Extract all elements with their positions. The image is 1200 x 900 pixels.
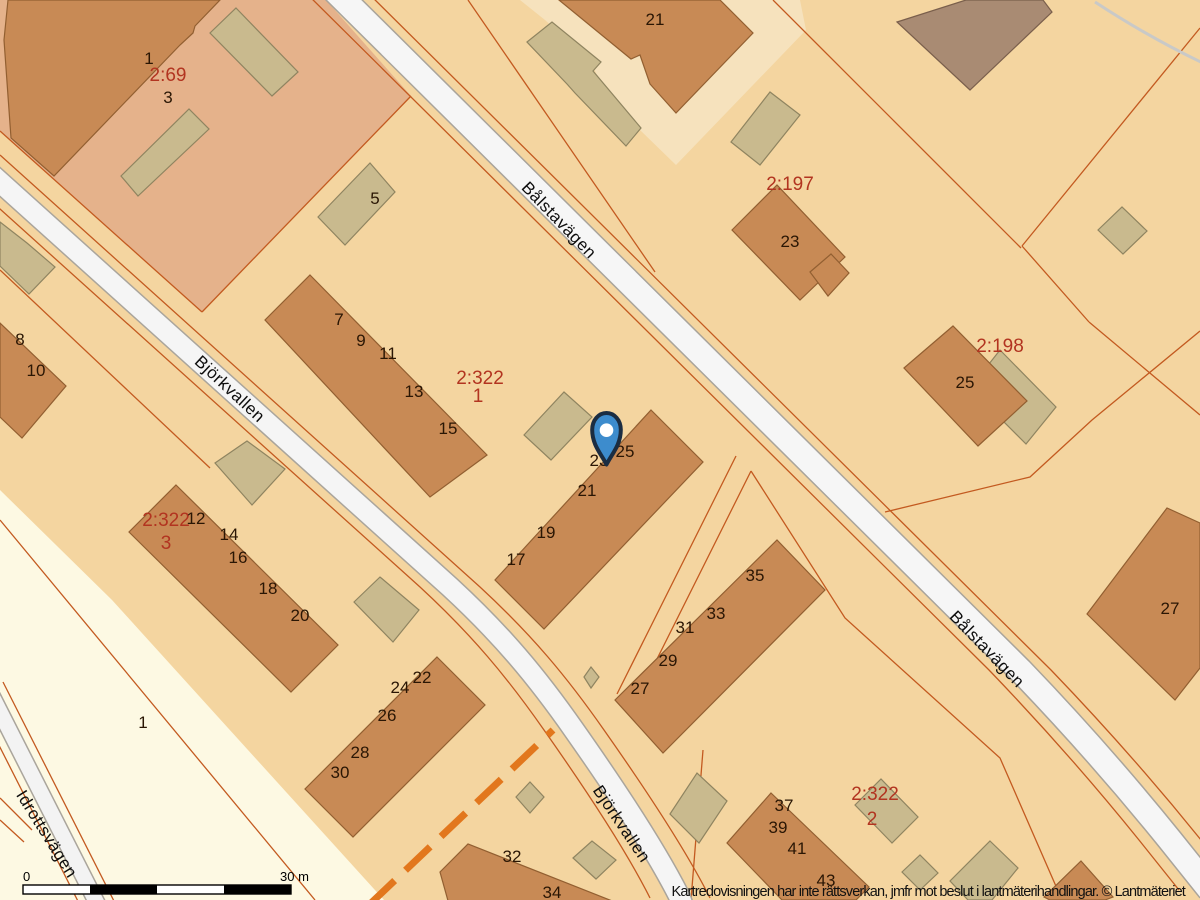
svg-text:29: 29 (659, 651, 678, 670)
svg-text:12: 12 (187, 509, 206, 528)
svg-text:22: 22 (413, 668, 432, 687)
svg-text:13: 13 (405, 382, 424, 401)
svg-text:18: 18 (259, 579, 278, 598)
svg-text:2: 2 (867, 809, 878, 830)
svg-text:31: 31 (676, 618, 695, 637)
svg-text:25: 25 (956, 373, 975, 392)
svg-text:34: 34 (543, 883, 562, 900)
svg-text:9: 9 (356, 331, 365, 350)
svg-text:3: 3 (161, 533, 172, 554)
svg-text:23: 23 (781, 232, 800, 251)
svg-text:1: 1 (473, 386, 484, 407)
svg-text:21: 21 (646, 10, 665, 29)
svg-text:14: 14 (220, 525, 239, 544)
svg-text:Kartredovisningen har inte rät: Kartredovisningen har inte rättsverkan, … (672, 884, 1186, 900)
svg-text:3: 3 (163, 88, 172, 107)
svg-text:7: 7 (334, 310, 343, 329)
svg-text:30: 30 (331, 763, 350, 782)
svg-text:26: 26 (378, 706, 397, 725)
svg-text:2:69: 2:69 (150, 65, 187, 86)
svg-text:21: 21 (578, 481, 597, 500)
svg-text:17: 17 (507, 550, 526, 569)
svg-text:16: 16 (229, 548, 248, 567)
svg-text:37: 37 (775, 796, 794, 815)
svg-text:39: 39 (769, 818, 788, 837)
svg-text:2:198: 2:198 (976, 336, 1024, 357)
svg-text:2:322: 2:322 (851, 784, 899, 805)
svg-text:20: 20 (291, 606, 310, 625)
svg-text:19: 19 (537, 523, 556, 542)
svg-text:1: 1 (144, 49, 153, 68)
svg-text:33: 33 (707, 604, 726, 623)
svg-text:30 m: 30 m (280, 869, 309, 884)
svg-text:32: 32 (503, 847, 522, 866)
svg-text:24: 24 (391, 678, 410, 697)
svg-text:15: 15 (439, 419, 458, 438)
svg-text:2:322: 2:322 (142, 510, 190, 531)
svg-text:2:197: 2:197 (766, 174, 814, 195)
svg-text:35: 35 (746, 566, 765, 585)
svg-text:1: 1 (138, 713, 147, 732)
svg-text:10: 10 (27, 361, 46, 380)
svg-text:11: 11 (379, 344, 397, 363)
svg-text:5: 5 (370, 189, 379, 208)
svg-text:27: 27 (1161, 599, 1180, 618)
svg-text:41: 41 (788, 839, 807, 858)
svg-text:8: 8 (15, 330, 24, 349)
svg-text:27: 27 (631, 679, 650, 698)
svg-text:28: 28 (351, 743, 370, 762)
svg-text:0: 0 (23, 869, 30, 884)
